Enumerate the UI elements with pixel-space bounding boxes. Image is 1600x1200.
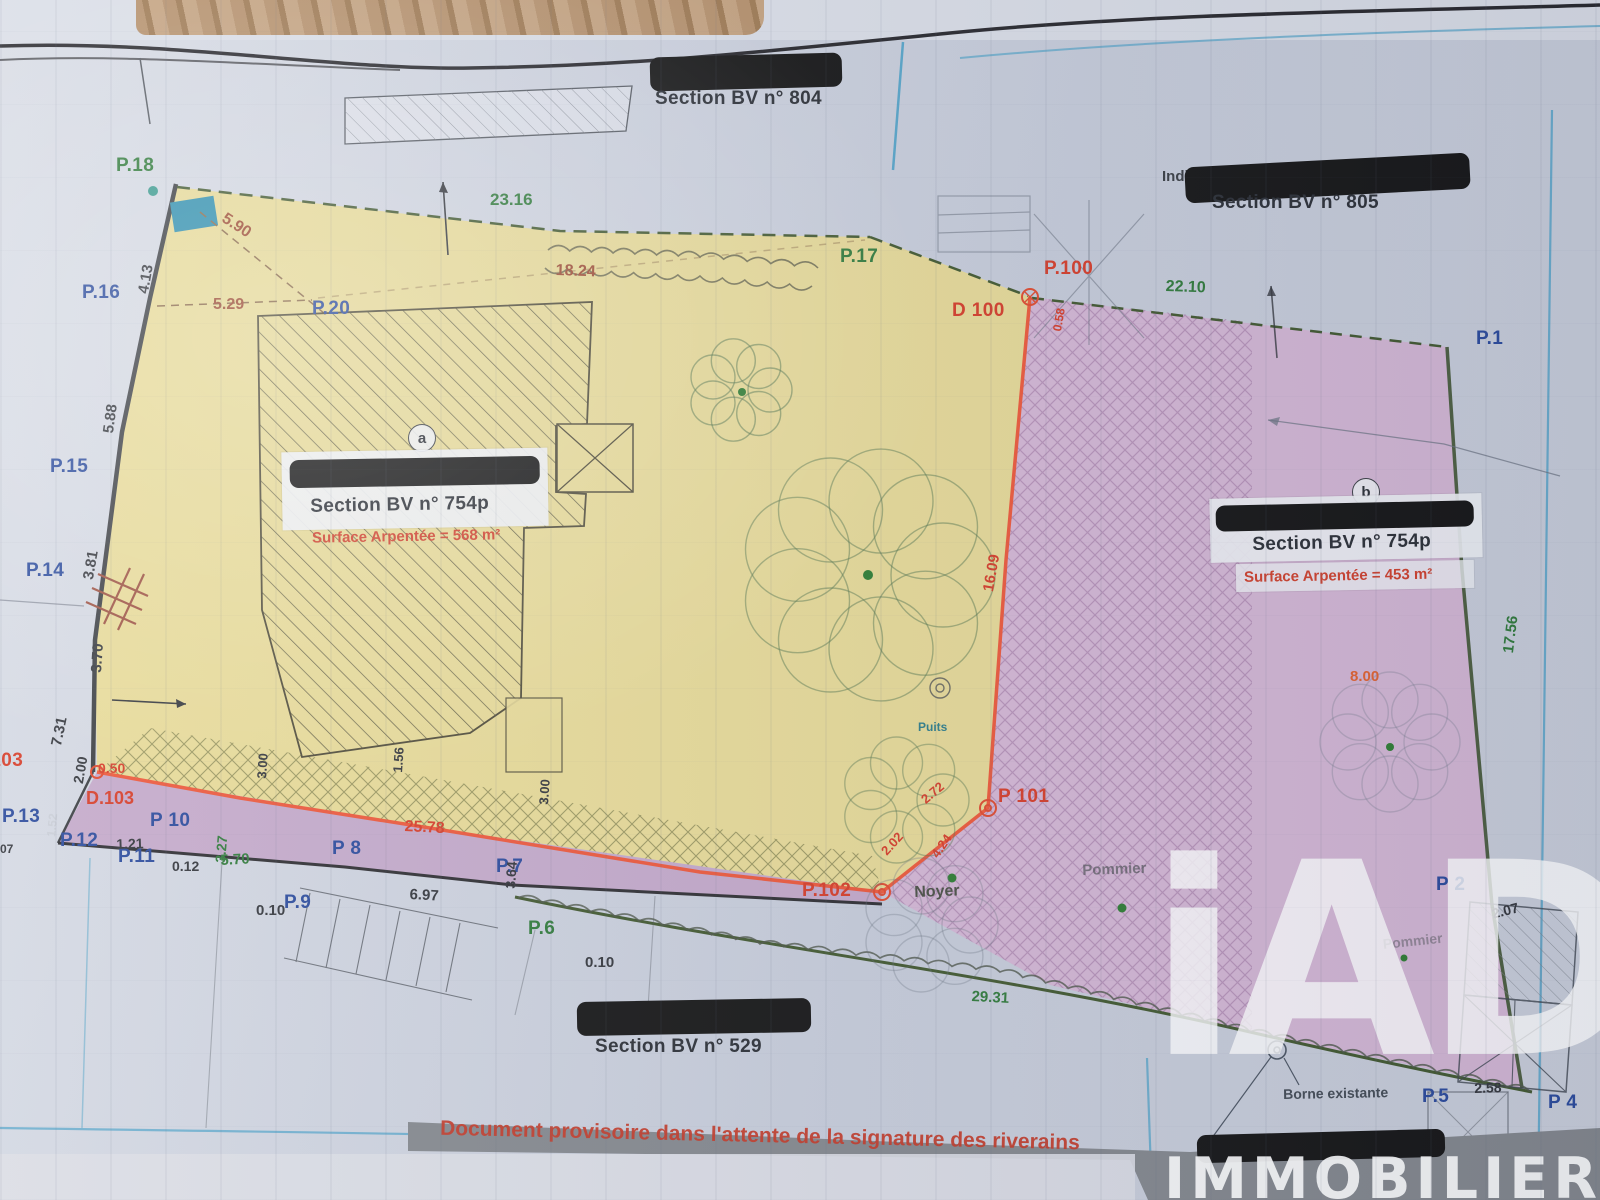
- measurement-0-50: 0.50: [98, 760, 125, 776]
- point-label-p13: P.13: [2, 806, 40, 828]
- tree-label-pommier-1: Pommier: [1082, 860, 1147, 879]
- measurement-22-10: 22.10: [1165, 278, 1206, 297]
- point-label-p16: P.16: [82, 282, 120, 304]
- tree-label-noyer: Noyer: [914, 882, 960, 902]
- measurement-3-64: 3.64: [502, 861, 520, 889]
- measurement-3-27: 3.27: [212, 835, 230, 864]
- point-label-p12: P.12: [60, 830, 98, 852]
- measurement-25-78: 25.78: [404, 818, 445, 838]
- measurement-3-00a: 3.00: [254, 753, 271, 779]
- redacted-owner-b: [1216, 500, 1474, 531]
- parcel-b-surface: Surface Arpentée = 453 m²: [1244, 566, 1433, 586]
- measurement-18-24: 18.24: [555, 262, 596, 281]
- measurement-5-88: 5.88: [100, 403, 121, 434]
- measurement-3-00b: 3.00: [536, 779, 553, 805]
- measurement-6-97: 6.97: [409, 886, 439, 905]
- point-label-p100: P.100: [1044, 258, 1093, 280]
- measurement-1-21: 1.21: [116, 835, 144, 852]
- measurement-2-02: 2.02: [878, 829, 906, 858]
- measurement-0-10a: 0.10: [256, 902, 285, 919]
- parcel-a-section: Section BV n° 754p: [310, 493, 489, 518]
- well-label-puits: Puits: [918, 720, 947, 734]
- parcel-a-labelbox: Section BV n° 754p: [281, 448, 548, 531]
- point-label-p103: P.103: [0, 750, 23, 772]
- measurement-1-52: 1.52: [44, 813, 60, 838]
- parcel-b-surfacebox: Surface Arpentée = 453 m²: [1236, 560, 1474, 592]
- measurement-8-00: 8.00: [1350, 668, 1379, 685]
- measurement-7-31: 7.31: [48, 715, 71, 747]
- iad-brand-watermark: IMMOBILIER: [1164, 1146, 1600, 1200]
- parcel-b-section: Section BV n° 754p: [1252, 530, 1431, 556]
- section-804-label: Section BV n° 804: [655, 88, 822, 110]
- measurement-4-24: 4.24: [928, 831, 955, 860]
- measurement-3-81: 3.81: [80, 549, 102, 581]
- point-label-p10: P 10: [150, 810, 190, 832]
- scanned-survey-plan: Indivision Section BV n° 804 Section BV …: [0, 0, 1600, 1200]
- point-label-d100: D 100: [952, 300, 1005, 322]
- point-label-p17: P.17: [840, 246, 878, 268]
- point-label-p6: P.6: [528, 918, 555, 940]
- parcel-a-marker: a: [408, 424, 436, 452]
- redacted-owner-a: [289, 456, 539, 488]
- iad-logo-watermark: iAD: [1148, 828, 1600, 1096]
- point-label-p101: P 101: [998, 786, 1049, 808]
- measurement-0-58: 0.58: [1050, 307, 1068, 332]
- redacted-owner-529: [577, 998, 812, 1036]
- measurement-2-72: 2.72: [918, 779, 947, 807]
- measurement-5-90: 5.90: [218, 210, 254, 242]
- point-label-p18: P.18: [116, 155, 154, 177]
- measurement-07: 07: [0, 842, 13, 856]
- measurement-23-16: 23.16: [490, 190, 533, 210]
- section-805-label: Section BV n° 805: [1212, 192, 1379, 214]
- redacted-owner-804: [650, 52, 843, 91]
- measurement-1-56: 1.56: [390, 747, 407, 773]
- measurement-2-00: 2.00: [70, 755, 90, 785]
- section-529-label: Section BV n° 529: [595, 1036, 762, 1058]
- parcel-a-surface: Surface Arpentée = 568 m²: [312, 526, 501, 546]
- point-label-p14: P.14: [26, 560, 64, 582]
- point-label-p9: P.9: [284, 892, 311, 914]
- measurement-17-56: 17.56: [1500, 615, 1521, 654]
- parcel-b-labelbox: Section BV n° 754p: [1209, 493, 1482, 563]
- point-label-p15: P.15: [50, 456, 88, 478]
- point-label-p8: P 8: [332, 838, 361, 860]
- measurement-29-31: 29.31: [971, 988, 1009, 1007]
- point-label-p1: P.1: [1476, 328, 1503, 350]
- measurement-16-09: 16.09: [980, 553, 1003, 593]
- measurement-4-13: 4.13: [135, 263, 157, 295]
- measurement-0-12: 0.12: [172, 858, 199, 874]
- point-label-d103: D.103: [86, 788, 134, 809]
- point-label-p20: P.20: [312, 298, 350, 320]
- measurement-5-29: 5.29: [213, 296, 244, 314]
- point-label-p102: P.102: [802, 880, 851, 902]
- measurement-3-70: 3.70: [88, 643, 107, 673]
- measurement-0-10b: 0.10: [585, 954, 614, 971]
